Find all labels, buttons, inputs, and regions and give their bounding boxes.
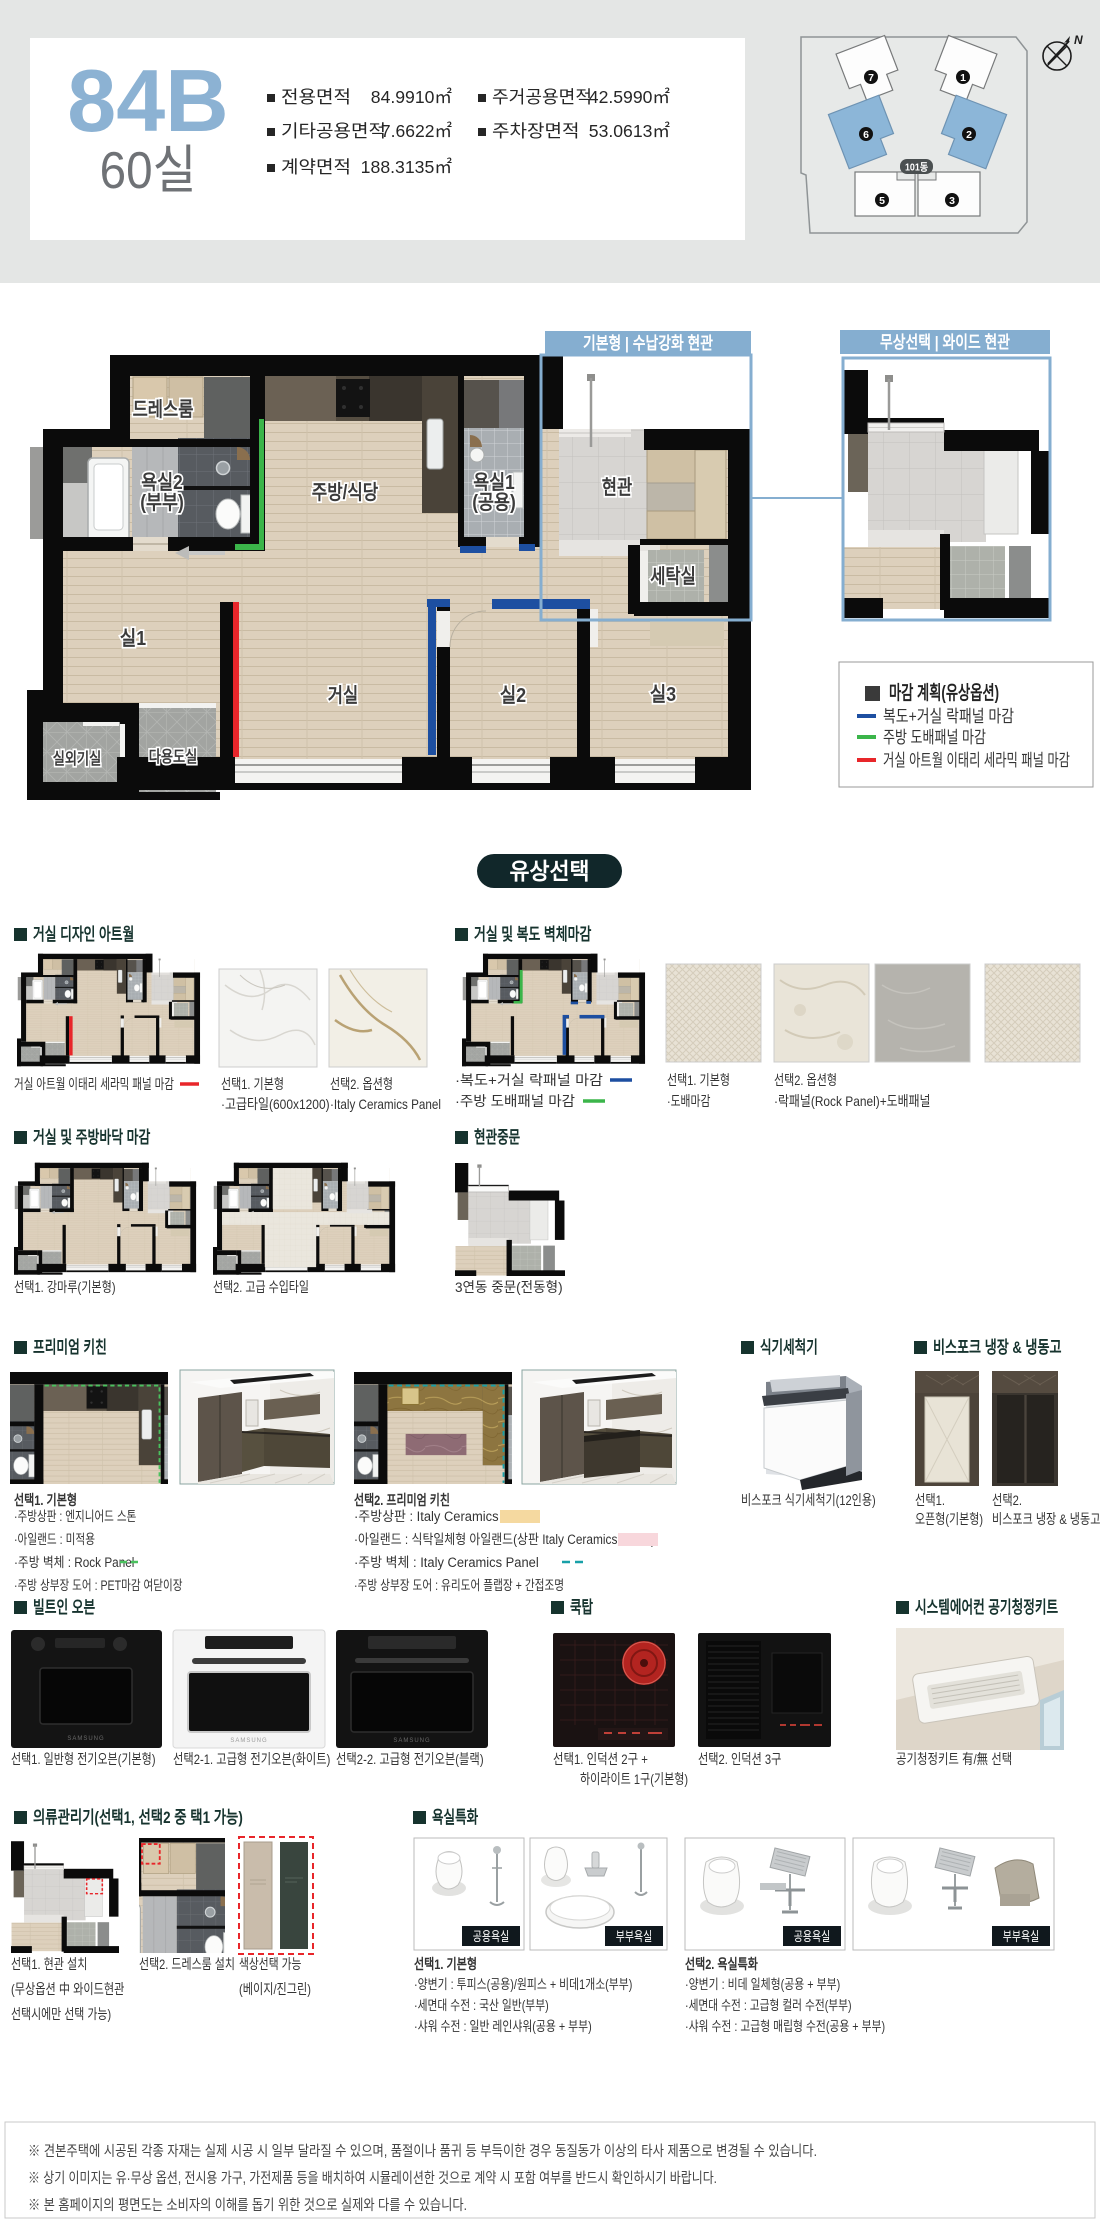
svg-text:선택2. 프리미엄 키친: 선택2. 프리미엄 키친: [354, 1492, 450, 1508]
svg-text:SAMSUNG: SAMSUNG: [393, 1738, 430, 1744]
svg-text:·주방 도배패널 마감: ·주방 도배패널 마감: [455, 1093, 575, 1109]
svg-text:선택2. 드레스룸 설치: 선택2. 드레스룸 설치: [139, 1956, 235, 1972]
svg-text:거실 및 주방바닥 마감: 거실 및 주방바닥 마감: [33, 1128, 151, 1147]
svg-text:선택1. 기본형: 선택1. 기본형: [221, 1076, 284, 1092]
svg-text:주방 도배패널 마감: 주방 도배패널 마감: [883, 728, 986, 747]
svg-text:선택2. 고급 수입타일: 선택2. 고급 수입타일: [213, 1279, 309, 1295]
svg-text:현관: 현관: [602, 476, 633, 499]
svg-text:무상선택 | 와이드 현관: 무상선택 | 와이드 현관: [880, 333, 1010, 352]
svg-text:선택1. 기본형: 선택1. 기본형: [414, 1956, 477, 1972]
svg-text:선택1. 일반형 전기오븐(기본형): 선택1. 일반형 전기오븐(기본형): [11, 1751, 156, 1767]
svg-text:·주방 상부장 도어 : PET마감 여닫이장: ·주방 상부장 도어 : PET마감 여닫이장: [14, 1578, 183, 1593]
svg-text:·주방 벽체 : Italy Ceramics Panel: ·주방 벽체 : Italy Ceramics Panel: [354, 1555, 539, 1570]
svg-text:선택1. 강마루(기본형): 선택1. 강마루(기본형): [14, 1279, 116, 1295]
svg-text:84B: 84B: [67, 51, 228, 150]
svg-text:·세면대 수전 : 국산 일반(부부): ·세면대 수전 : 국산 일반(부부): [414, 1998, 549, 2013]
svg-text:7.6622㎡: 7.6622㎡: [381, 121, 453, 141]
svg-text:욕실2: 욕실2: [141, 471, 182, 494]
svg-text:마감 계획(유상옵션): 마감 계획(유상옵션): [889, 682, 999, 704]
svg-text:84.9910㎡: 84.9910㎡: [371, 87, 453, 107]
svg-text:선택시에만 선택 가능): 선택시에만 선택 가능): [11, 2006, 111, 2022]
svg-text:공용욕실: 공용욕실: [794, 1929, 830, 1944]
svg-text:·도배마감: ·도배마감: [667, 1093, 710, 1109]
svg-text:6: 6: [863, 129, 869, 141]
svg-text:실3: 실3: [650, 683, 676, 706]
svg-text:·주방 벽체 : Rock Panel: ·주방 벽체 : Rock Panel: [14, 1555, 134, 1570]
svg-text:선택2.: 선택2.: [992, 1492, 1022, 1508]
svg-text:선택2-1. 고급형 전기오븐(화이트): 선택2-1. 고급형 전기오븐(화이트): [173, 1751, 330, 1767]
svg-text:·샤워 수전 : 일반 레인샤워(공용 + 부부): ·샤워 수전 : 일반 레인샤워(공용 + 부부): [414, 2019, 592, 2034]
svg-text:선택2-2. 고급형 전기오븐(블랙): 선택2-2. 고급형 전기오븐(블랙): [336, 1751, 484, 1767]
svg-text:(부부): (부부): [140, 491, 184, 514]
svg-text:선택1. 인덕션 2구 +: 선택1. 인덕션 2구 +: [553, 1751, 648, 1767]
svg-text:현관중문: 현관중문: [474, 1128, 520, 1147]
svg-text:거실: 거실: [328, 684, 358, 707]
svg-text:선택1. 현관 설치: 선택1. 현관 설치: [11, 1956, 87, 1972]
svg-text:주거공용면적: 주거공용면적: [492, 87, 592, 107]
svg-text:계약면적: 계약면적: [281, 157, 351, 177]
svg-text:주차장면적: 주차장면적: [492, 121, 580, 141]
svg-text:·아일랜드 : 미적용: ·아일랜드 : 미적용: [14, 1532, 95, 1547]
svg-text:42.5990㎡: 42.5990㎡: [589, 87, 671, 107]
svg-text:5: 5: [879, 195, 885, 207]
svg-text:오픈형(기본형): 오픈형(기본형): [915, 1511, 983, 1527]
svg-text:·샤워 수전 : 고급형 매립형 수전(공용 + 부부): ·샤워 수전 : 고급형 매립형 수전(공용 + 부부): [685, 2019, 885, 2034]
svg-text:하이라이트 1구(기본형): 하이라이트 1구(기본형): [580, 1771, 688, 1787]
svg-text:·주방 상부장 도어 : 유리도어 플랩장 + 간접조명: ·주방 상부장 도어 : 유리도어 플랩장 + 간접조명: [354, 1578, 564, 1593]
svg-text:실외기실: 실외기실: [53, 750, 102, 768]
svg-text:188.3135㎡: 188.3135㎡: [361, 157, 453, 177]
svg-text:선택2. 옵션형: 선택2. 옵션형: [774, 1072, 837, 1088]
svg-text:쿡탑: 쿡탑: [570, 1597, 593, 1617]
svg-text:유상선택: 유상선택: [510, 858, 590, 884]
svg-text:※ 본 홈페이지의 평면도는 소비자의 이해를 돕기 위한: ※ 본 홈페이지의 평면도는 소비자의 이해를 돕기 위한 것으로 실제와 다를…: [28, 2197, 467, 2214]
svg-text:주방/식당: 주방/식당: [312, 481, 379, 504]
svg-text:욕실특화: 욕실특화: [432, 1808, 478, 1827]
svg-text:(베이지/진그린): (베이지/진그린): [239, 1981, 311, 1997]
svg-text:(공용): (공용): [472, 491, 516, 514]
svg-text:·주방상판 : 엔지니어드 스톤: ·주방상판 : 엔지니어드 스톤: [14, 1509, 136, 1524]
svg-text:·Italy Ceramics Panel: ·Italy Ceramics Panel: [330, 1096, 441, 1112]
svg-text:SAMSUNG: SAMSUNG: [67, 1736, 104, 1742]
svg-text:색상선택 가능: 색상선택 가능: [239, 1956, 301, 1972]
svg-text:선택1. 기본형: 선택1. 기본형: [14, 1492, 77, 1508]
svg-text:부부욕실: 부부욕실: [616, 1929, 652, 1944]
svg-text:60실: 60실: [100, 142, 197, 200]
svg-text:53.0613㎡: 53.0613㎡: [589, 121, 671, 141]
svg-text:실1: 실1: [120, 627, 146, 650]
svg-text:기타공용면적: 기타공용면적: [281, 121, 386, 141]
svg-text:선택2. 인덕션 3구: 선택2. 인덕션 3구: [698, 1751, 781, 1767]
svg-text:선택2. 옵션형: 선택2. 옵션형: [330, 1076, 393, 1092]
svg-text:실2: 실2: [500, 684, 526, 707]
svg-text:부부욕실: 부부욕실: [1003, 1929, 1039, 1944]
svg-text:시스템에어컨 공기청정키트: 시스템에어컨 공기청정키트: [915, 1597, 1058, 1617]
svg-text:3: 3: [949, 195, 955, 207]
svg-text:N: N: [1074, 33, 1083, 47]
svg-text:2: 2: [966, 129, 972, 141]
svg-text:거실 아트월 이태리 세라믹 패널 마감: 거실 아트월 이태리 세라믹 패널 마감: [883, 751, 1070, 770]
svg-text:복도+거실 락패널 마감: 복도+거실 락패널 마감: [883, 707, 1014, 726]
svg-text:빌트인 오븐: 빌트인 오븐: [33, 1598, 95, 1617]
svg-text:비스포크 식기세척기(12인용): 비스포크 식기세척기(12인용): [741, 1492, 876, 1508]
svg-text:기본형 | 수납강화 현관: 기본형 | 수납강화 현관: [583, 333, 713, 353]
svg-text:※ 견본주택에 시공된 각종 자재는 실제 시공 시 일부: ※ 견본주택에 시공된 각종 자재는 실제 시공 시 일부 달라질 수 있으며,…: [28, 2143, 817, 2160]
svg-text:선택1. 기본형: 선택1. 기본형: [667, 1072, 730, 1088]
svg-text:드레스룸: 드레스룸: [133, 398, 194, 421]
svg-text:·세면대 수전 : 고급형 컬러 수전(부부): ·세면대 수전 : 고급형 컬러 수전(부부): [685, 1998, 852, 2013]
svg-text:다용도실: 다용도실: [149, 748, 198, 766]
svg-text:·락패널(Rock Panel)+도배패널: ·락패널(Rock Panel)+도배패널: [774, 1093, 931, 1109]
svg-text:전용면적: 전용면적: [281, 87, 351, 107]
svg-text:7: 7: [868, 72, 874, 84]
svg-text:프리미엄 키친: 프리미엄 키친: [33, 1338, 107, 1357]
svg-text:·복도+거실 락패널 마감: ·복도+거실 락패널 마감: [455, 1072, 603, 1088]
svg-text:거실 아트월 이태리 세라믹 패널 마감: 거실 아트월 이태리 세라믹 패널 마감: [14, 1076, 174, 1092]
svg-text:거실 및 복도 벽체마감: 거실 및 복도 벽체마감: [474, 925, 592, 944]
svg-text:식기세척기: 식기세척기: [760, 1338, 818, 1357]
svg-text:세탁실: 세탁실: [650, 565, 696, 588]
svg-text:3연동 중문(전동형): 3연동 중문(전동형): [455, 1279, 563, 1295]
svg-text:선택2. 욕실특화: 선택2. 욕실특화: [685, 1956, 758, 1972]
svg-text:욕실1: 욕실1: [473, 471, 514, 494]
svg-text:SAMSUNG: SAMSUNG: [230, 1738, 267, 1744]
svg-text:공기청정키트 有/無 선택: 공기청정키트 有/無 선택: [896, 1751, 1012, 1767]
svg-text:공용욕실: 공용욕실: [473, 1929, 509, 1944]
svg-text:·아일랜드 : 식탁일체형 아일랜드(상판 Italy Ce: ·아일랜드 : 식탁일체형 아일랜드(상판 Italy Ceramics Pan…: [354, 1532, 655, 1547]
svg-text:·양변기 : 비데 일체형(공용 + 부부): ·양변기 : 비데 일체형(공용 + 부부): [685, 1977, 840, 1992]
svg-text:101동: 101동: [905, 162, 928, 174]
svg-text:1: 1: [960, 72, 966, 84]
svg-text:거실 디자인 아트월: 거실 디자인 아트월: [33, 925, 134, 944]
svg-text:·고급타일(600x1200): ·고급타일(600x1200): [221, 1096, 330, 1112]
svg-text:선택1.: 선택1.: [915, 1492, 945, 1508]
svg-text:비스포크 냉장 & 냉동고: 비스포크 냉장 & 냉동고: [933, 1338, 1062, 1357]
svg-text:※ 상기 이미지는 유·무상 옵션, 전시용 가구, 가전제: ※ 상기 이미지는 유·무상 옵션, 전시용 가구, 가전제품 등을 배치하여 …: [28, 2170, 717, 2187]
svg-text:비스포크 냉장 & 냉동고: 비스포크 냉장 & 냉동고: [992, 1511, 1100, 1527]
svg-text:·양변기 : 투피스(공용)/원피스 + 비데1개소(부부): ·양변기 : 투피스(공용)/원피스 + 비데1개소(부부): [414, 1977, 632, 1992]
svg-text:(무상옵션 中 와이드현관: (무상옵션 中 와이드현관: [11, 1981, 124, 1997]
svg-text:의류관리기(선택1, 선택2 중 택1 가능): 의류관리기(선택1, 선택2 중 택1 가능): [33, 1808, 243, 1827]
